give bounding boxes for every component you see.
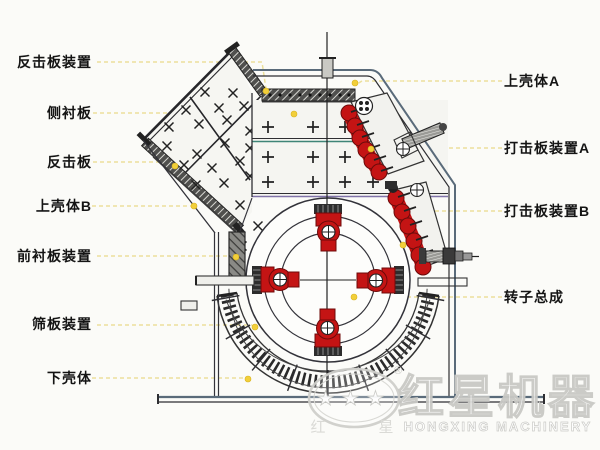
label-side-liner-plate: 侧衬板	[0, 104, 92, 122]
label-upper-shell-b: 上壳体B	[0, 197, 92, 215]
label-striking-plate-assembly-b: 打击板装置B	[504, 202, 600, 220]
label-lower-shell: 下壳体	[0, 369, 92, 387]
logo-char-right: 星	[378, 419, 393, 436]
right-support-bar	[418, 278, 467, 286]
screenshot-canvas: ★★★ 红 星 ® 红星机器 HONGXING MACHINERY 反击板装置 …	[0, 0, 600, 450]
watermark-logo: ★★★ 红 星 ® 红星机器 HONGXING MACHINERY	[309, 365, 598, 436]
label-front-liner-assembly: 前衬板装置	[0, 247, 92, 265]
feed-chute	[137, 41, 267, 250]
left-lug	[181, 301, 197, 310]
brand-cn: 红星机器	[398, 371, 598, 423]
step-bar	[196, 276, 254, 285]
rotor	[246, 32, 410, 397]
label-screen-plate-assembly: 筛板装置	[0, 315, 92, 333]
label-impact-plate-assembly: 反击板装置	[0, 53, 92, 71]
impact-plate-assembly-bar	[262, 89, 355, 101]
label-striking-plate-assembly-a: 打击板装置A	[504, 139, 600, 157]
label-upper-shell-a: 上壳体A	[504, 72, 600, 90]
brand-en: HONGXING MACHINERY	[404, 419, 593, 434]
label-rotor-assembly: 转子总成	[504, 288, 600, 306]
logo-stars: ★★★	[317, 386, 392, 410]
logo-char-left: 红	[310, 419, 325, 436]
top-stub-bolt	[319, 58, 336, 78]
label-impact-plate: 反击板	[0, 153, 92, 171]
